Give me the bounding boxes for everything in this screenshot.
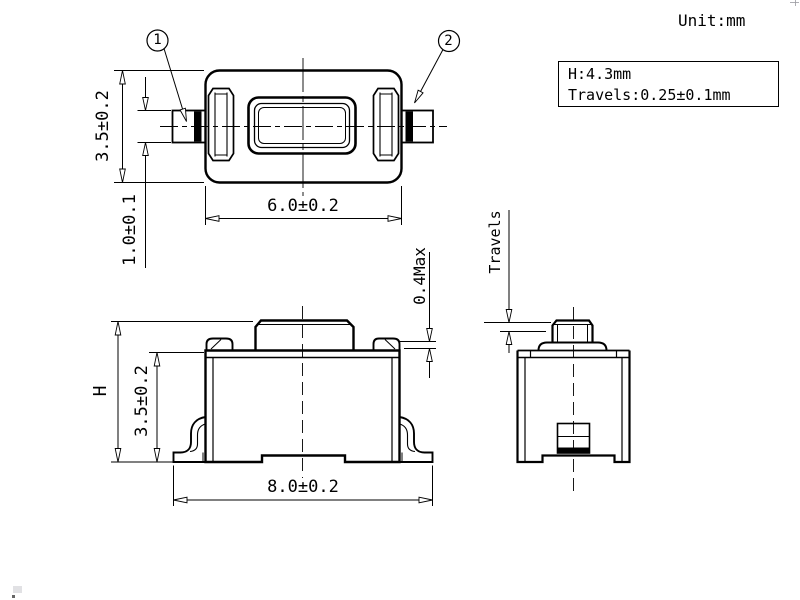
front-view-right-ear <box>374 339 400 351</box>
callout-2-number: 2 <box>438 31 459 51</box>
unit-label: Unit:mm <box>678 11 745 30</box>
front-view-left-lead <box>174 417 206 462</box>
front-view <box>174 306 433 478</box>
top-view-actuator <box>249 98 356 154</box>
top-view-dim-lead-width: 1.0±0.1 <box>119 160 141 300</box>
top-view-dim-body-width: 6.0±0.2 <box>233 195 373 217</box>
callout-1-number: 1 <box>147 30 168 50</box>
side-view-dim-travel: Travels <box>484 172 506 312</box>
front-view-dim-housing-height: 3.5±0.2 <box>131 331 153 471</box>
side-view-button <box>553 321 593 343</box>
spec-info-box: H:4.3mm Travels:0.25±0.1mm <box>558 61 779 107</box>
top-view-left-tab <box>209 89 234 161</box>
top-view <box>160 58 447 196</box>
top-view-right-tab <box>374 89 399 161</box>
top-view-dim-body-height: 3.5±0.2 <box>92 56 114 196</box>
front-view-dim-ear-clearance: 0.4Max <box>409 206 431 346</box>
spec-height: H:4.3mm <box>568 64 778 85</box>
side-view <box>518 307 630 491</box>
front-view-left-ear <box>207 339 233 351</box>
spec-travel: Travels:0.25±0.1mm <box>568 85 778 106</box>
front-view-right-lead <box>400 417 433 462</box>
side-view-flange <box>539 343 607 351</box>
drawing-sheet: Unit:mm H:4.3mm Travels:0.25±0.1mm 3.5±0… <box>0 0 800 600</box>
front-view-dim-total-height: H <box>90 321 112 461</box>
front-view-dim-overall-width: 8.0±0.2 <box>233 476 373 498</box>
